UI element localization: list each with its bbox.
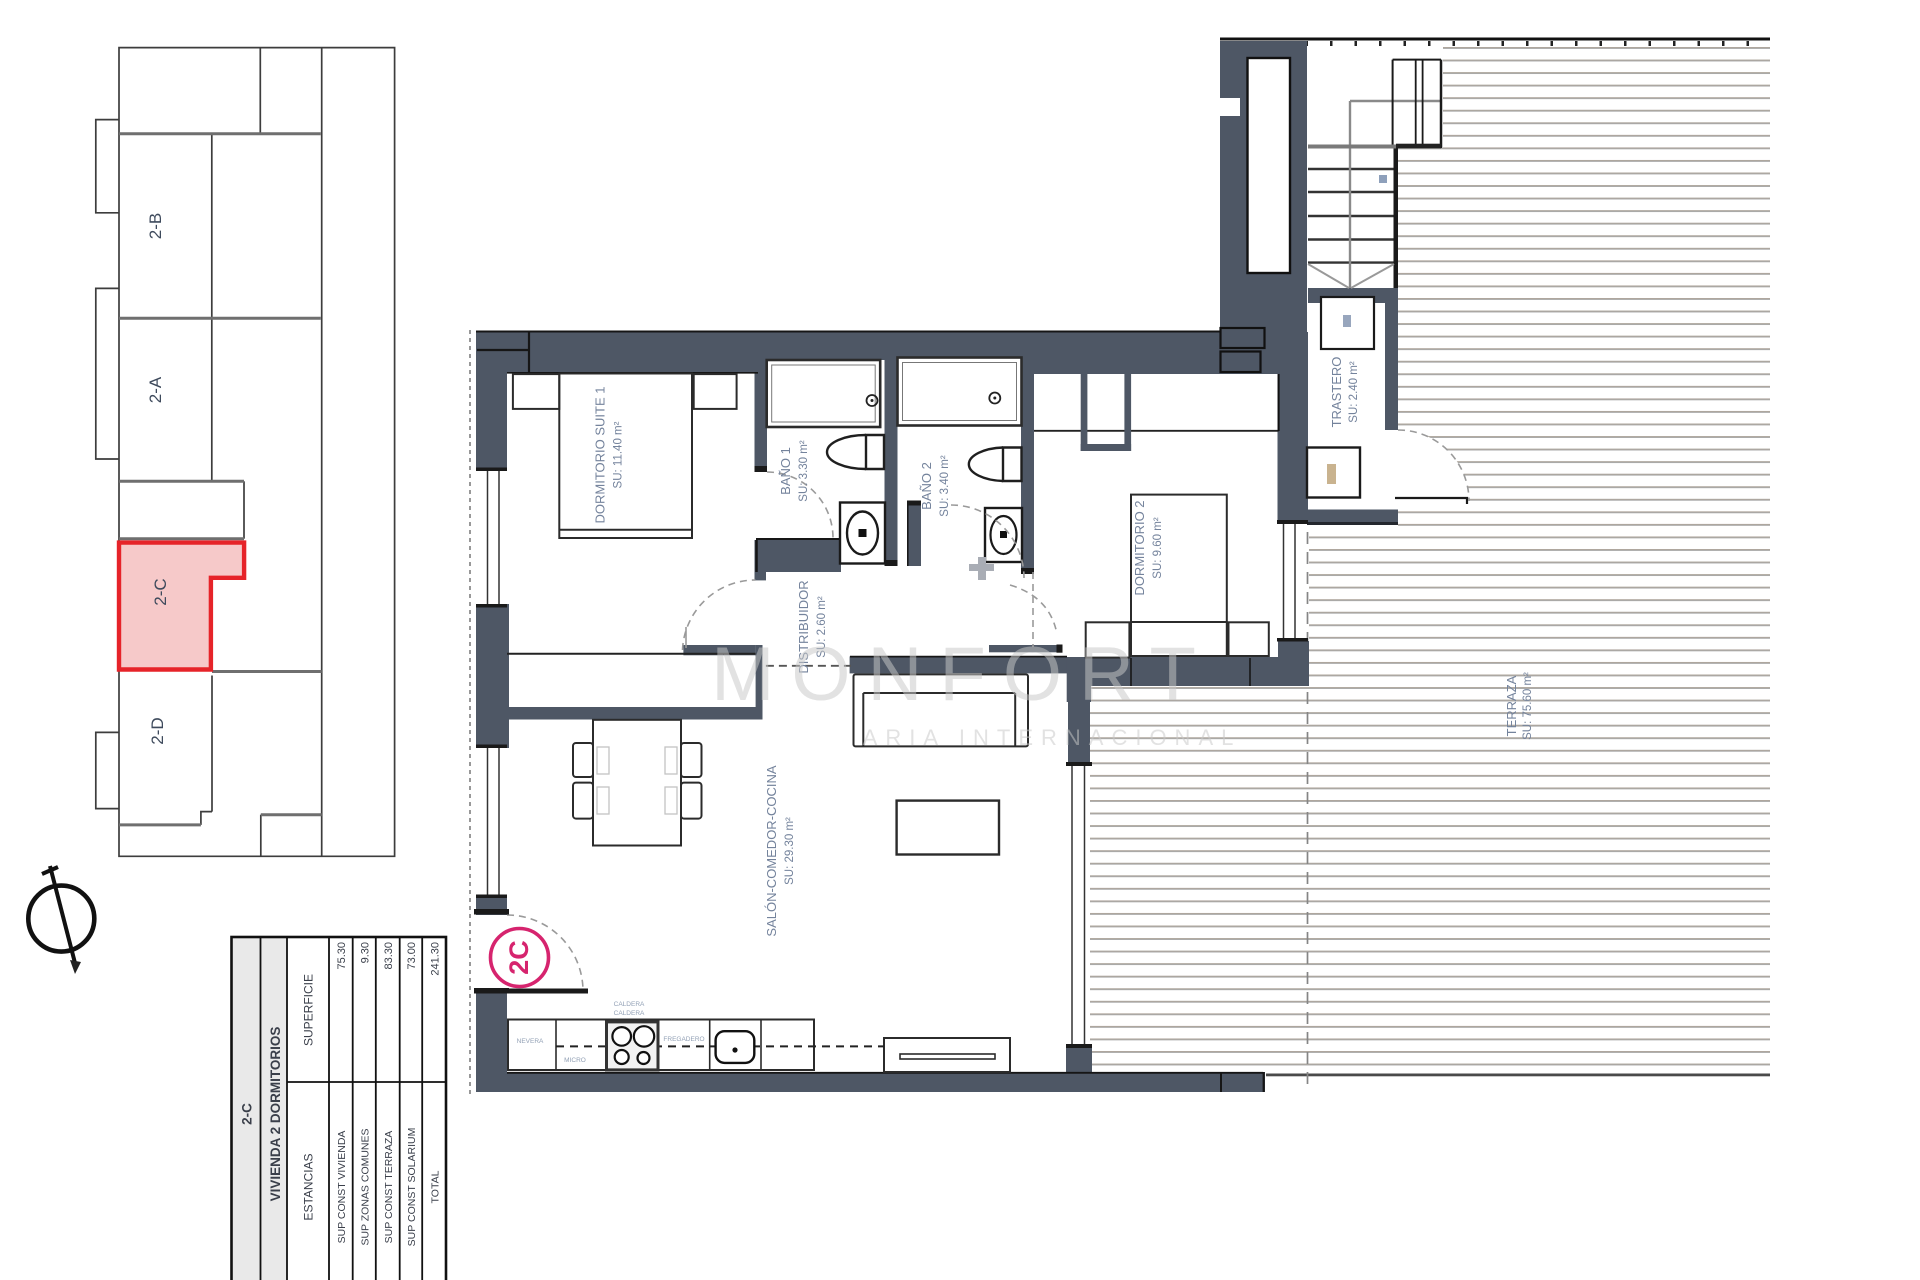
- svg-text:SU: 3.30 m²: SU: 3.30 m²: [798, 440, 810, 502]
- svg-text:DORMITORIO SUITE 1: DORMITORIO SUITE 1: [593, 387, 608, 524]
- svg-text:TOTAL: TOTAL: [429, 1170, 441, 1203]
- svg-text:BAÑO 1: BAÑO 1: [778, 447, 793, 495]
- svg-text:2-C: 2-C: [151, 578, 170, 605]
- svg-text:MONFORT: MONFORT: [711, 632, 1213, 717]
- svg-text:DORMITORIO 2: DORMITORIO 2: [1132, 500, 1147, 595]
- svg-text:SUP CONST TERRAZA: SUP CONST TERRAZA: [383, 1131, 395, 1244]
- svg-text:2-A: 2-A: [146, 376, 165, 403]
- svg-text:TERRAZA: TERRAZA: [1504, 675, 1519, 736]
- svg-text:ESTANCIAS: ESTANCIAS: [302, 1153, 316, 1220]
- svg-text:MICRO: MICRO: [564, 1057, 586, 1064]
- svg-text:VIVIENDA 2 DORMITORIOS: VIVIENDA 2 DORMITORIOS: [268, 1027, 283, 1202]
- svg-text:SU: 75.60 m²: SU: 75.60 m²: [1522, 672, 1534, 740]
- svg-text:SU: 9.60 m²: SU: 9.60 m²: [1152, 517, 1164, 579]
- svg-text:SUP ZONAS COMUNES: SUP ZONAS COMUNES: [359, 1128, 371, 1245]
- svg-text:SU: 11.40 m²: SU: 11.40 m²: [613, 421, 625, 488]
- svg-text:83.30: 83.30: [383, 942, 395, 970]
- svg-text:2C: 2C: [504, 940, 534, 975]
- svg-text:SUP CONST SOLARIUM: SUP CONST SOLARIUM: [406, 1128, 418, 1247]
- svg-text:SU: 2.40 m²: SU: 2.40 m²: [1348, 361, 1360, 423]
- svg-text:241.30: 241.30: [429, 942, 441, 976]
- svg-text:73.00: 73.00: [406, 942, 418, 970]
- svg-text:SU: 3.40 m²: SU: 3.40 m²: [939, 455, 951, 517]
- svg-text:2-C: 2-C: [240, 1103, 255, 1125]
- svg-text:CALDERA: CALDERA: [614, 1001, 645, 1008]
- svg-text:SALÓN-COMEDOR-COCINA: SALÓN-COMEDOR-COCINA: [764, 765, 779, 937]
- svg-text:CALDERA: CALDERA: [614, 1010, 645, 1017]
- svg-text:SUP CONST VIVIENDA: SUP CONST VIVIENDA: [336, 1131, 348, 1244]
- svg-text:75.30: 75.30: [336, 942, 348, 970]
- svg-text:2-B: 2-B: [146, 213, 165, 239]
- svg-text:TRASTERO: TRASTERO: [1329, 357, 1344, 428]
- svg-text:NEVERA: NEVERA: [517, 1038, 544, 1045]
- svg-text:BAÑO 2: BAÑO 2: [919, 462, 934, 510]
- svg-text:2-D: 2-D: [148, 717, 167, 744]
- svg-text:FREGADERO: FREGADERO: [663, 1036, 704, 1043]
- svg-text:SUPERFICIE: SUPERFICIE: [302, 974, 316, 1046]
- svg-text:SU: 29.30 m²: SU: 29.30 m²: [784, 817, 796, 885]
- svg-text:ARIA INTERNACIONAL: ARIA INTERNACIONAL: [863, 725, 1242, 750]
- svg-text:9.30: 9.30: [359, 942, 371, 963]
